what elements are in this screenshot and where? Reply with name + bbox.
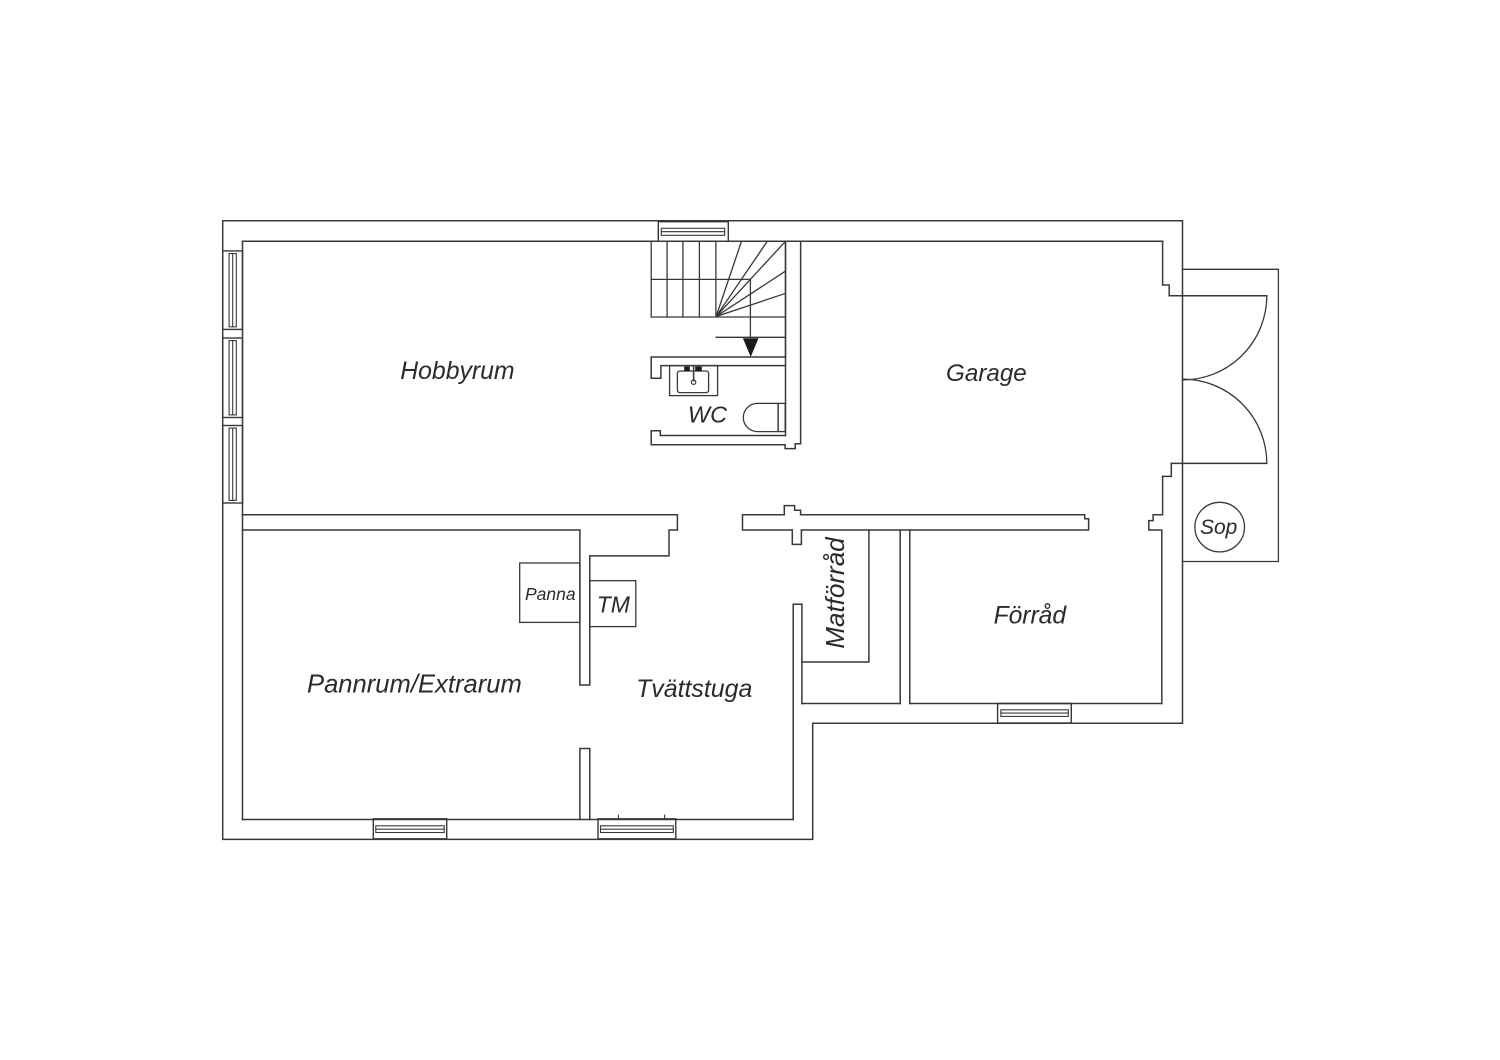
svg-text:Tvättstuga: Tvättstuga — [636, 675, 752, 703]
svg-text:TM: TM — [597, 592, 631, 618]
svg-text:Sop: Sop — [1200, 516, 1237, 539]
svg-text:Panna: Panna — [525, 584, 576, 604]
svg-text:Pannrum/Extrarum: Pannrum/Extrarum — [307, 671, 522, 699]
svg-text:WC: WC — [688, 402, 728, 428]
svg-text:Garage: Garage — [946, 360, 1027, 387]
svg-text:Förråd: Förråd — [994, 603, 1068, 630]
svg-text:Matförråd: Matförråd — [820, 536, 850, 649]
svg-text:Hobbyrum: Hobbyrum — [400, 358, 514, 385]
